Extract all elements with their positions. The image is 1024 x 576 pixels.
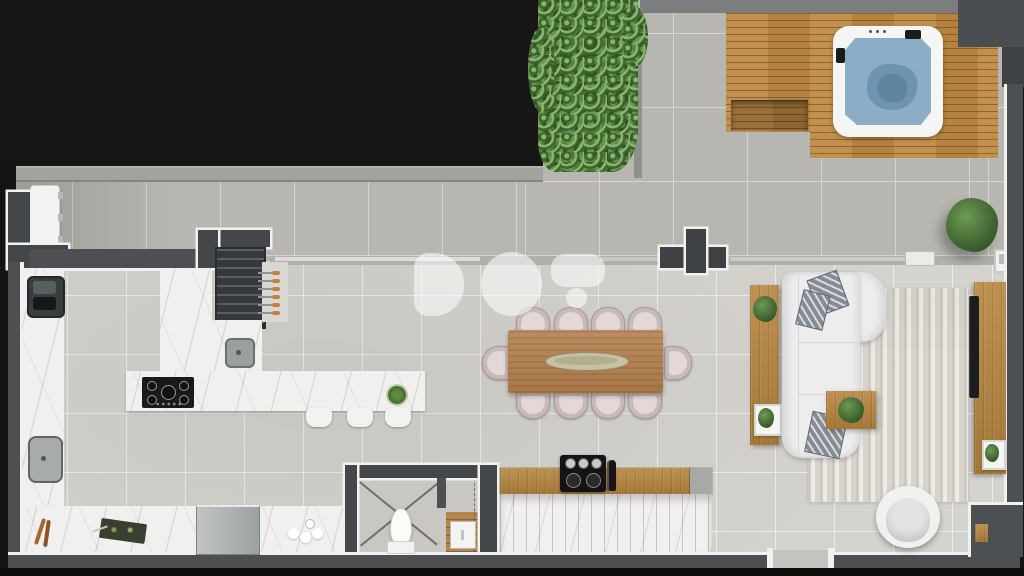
- wc-wall-top: [352, 465, 497, 478]
- console-plant: [753, 296, 777, 322]
- dish: [300, 532, 311, 543]
- grill-sink: [225, 338, 255, 368]
- counter-column: [160, 268, 212, 372]
- watermark-letter-o: [481, 252, 542, 316]
- wc-partition: [437, 478, 446, 508]
- coffee-table-plant: [838, 397, 864, 423]
- glass-panel-highlight: [730, 257, 905, 261]
- skewer: [258, 288, 272, 290]
- burner-center: [161, 385, 176, 400]
- sideboard-plant-pot: [982, 440, 1006, 470]
- bar-stool: [385, 408, 411, 427]
- bar-marble-front: [500, 494, 712, 552]
- burner: [179, 381, 189, 391]
- potted-tree: [946, 198, 998, 252]
- hot-tub-control-top: [905, 30, 921, 39]
- island-plant: [388, 386, 406, 404]
- bar-stool: [347, 408, 373, 427]
- watermark-dot: [566, 288, 587, 308]
- skewer: [258, 280, 272, 282]
- double-sink: [27, 276, 65, 318]
- dish: [288, 528, 299, 539]
- skewer-handle: [272, 303, 280, 307]
- sofa-back-seam: [798, 276, 799, 454]
- backdrop-top-left: [0, 0, 543, 166]
- swivel-armchair: [876, 486, 940, 548]
- skewer-handle: [272, 295, 280, 299]
- prep-sink: [28, 436, 63, 483]
- machine-cup: [578, 458, 589, 469]
- refrigerator: [196, 505, 260, 555]
- outdoor-bench: [31, 186, 59, 246]
- wc-wall-left: [345, 465, 357, 552]
- hot-tub-jet-dots: [867, 29, 889, 34]
- hedge-overflow-blob: [622, 6, 648, 66]
- armchair-seat: [886, 498, 930, 542]
- skewer: [258, 272, 272, 274]
- machine-cup: [565, 458, 576, 469]
- sink-bowl: [33, 297, 56, 310]
- glass-door-panel: [905, 251, 935, 266]
- bar-stool: [306, 408, 332, 427]
- console-plant-pot: [754, 404, 782, 436]
- faucet-dot: [236, 350, 241, 355]
- potted-plant: [758, 408, 774, 428]
- centerpiece-tray: [545, 352, 629, 371]
- machine-cup: [591, 458, 602, 469]
- tray-inner: [554, 356, 618, 365]
- wine-bottle: [607, 460, 616, 491]
- bench-foot: [58, 214, 63, 221]
- parapet-wall-top-right: [640, 0, 958, 13]
- cup: [305, 519, 315, 529]
- skewer-handle: [272, 271, 280, 275]
- corner-block-right: [1002, 47, 1024, 87]
- skewer-handle: [272, 311, 280, 315]
- portafilter: [586, 473, 601, 488]
- parapet-wall-left: [16, 166, 543, 182]
- burner: [147, 381, 157, 391]
- toilet-tank: [387, 541, 415, 554]
- cabinet-handle: [461, 530, 464, 540]
- skewer: [258, 304, 272, 306]
- deck-bench: [731, 100, 808, 131]
- skewer-handle: [272, 279, 280, 283]
- floor-plan-render: DO: [0, 0, 1024, 576]
- column-vertical: [686, 229, 706, 273]
- espresso-machine: [560, 455, 606, 492]
- hedge-overflow-blob: [528, 28, 554, 112]
- faucet-dot: [41, 456, 46, 461]
- counter-bottom-right: [258, 506, 346, 552]
- bench-foot: [58, 192, 63, 199]
- dish: [312, 528, 323, 539]
- hot-tub-seat-deep: [877, 74, 907, 102]
- door-sill-wood: [975, 524, 988, 542]
- bench-foot: [58, 236, 63, 243]
- wall-right: [1004, 84, 1023, 554]
- cooktop-knobs: [155, 402, 181, 406]
- skewer: [258, 296, 272, 298]
- glass-door-track: [270, 256, 1004, 265]
- bar-counter-gray-section: [690, 468, 712, 494]
- skewer: [258, 312, 272, 314]
- tv: [969, 296, 979, 398]
- hot-tub-water: [845, 38, 931, 125]
- gas-cooktop: [142, 377, 194, 408]
- glass-panel-highlight: [600, 257, 660, 261]
- watermark-bar: [551, 254, 605, 287]
- door-opening-bottom: [773, 550, 828, 570]
- dining-chair: [482, 346, 510, 380]
- potted-plant: [985, 444, 999, 462]
- hot-tub: [833, 26, 943, 137]
- skewer-handle: [272, 287, 280, 291]
- wc-wall-right: [480, 465, 497, 552]
- stair-cabinet: [450, 521, 476, 549]
- hot-tub-control-left: [836, 48, 845, 63]
- corner-block-top-right: [958, 0, 1024, 47]
- backdrop-bottom-edge: [0, 568, 1024, 576]
- sink-bowl: [33, 281, 56, 294]
- portafilter: [566, 473, 581, 488]
- sofa-cushion-seam: [798, 342, 858, 343]
